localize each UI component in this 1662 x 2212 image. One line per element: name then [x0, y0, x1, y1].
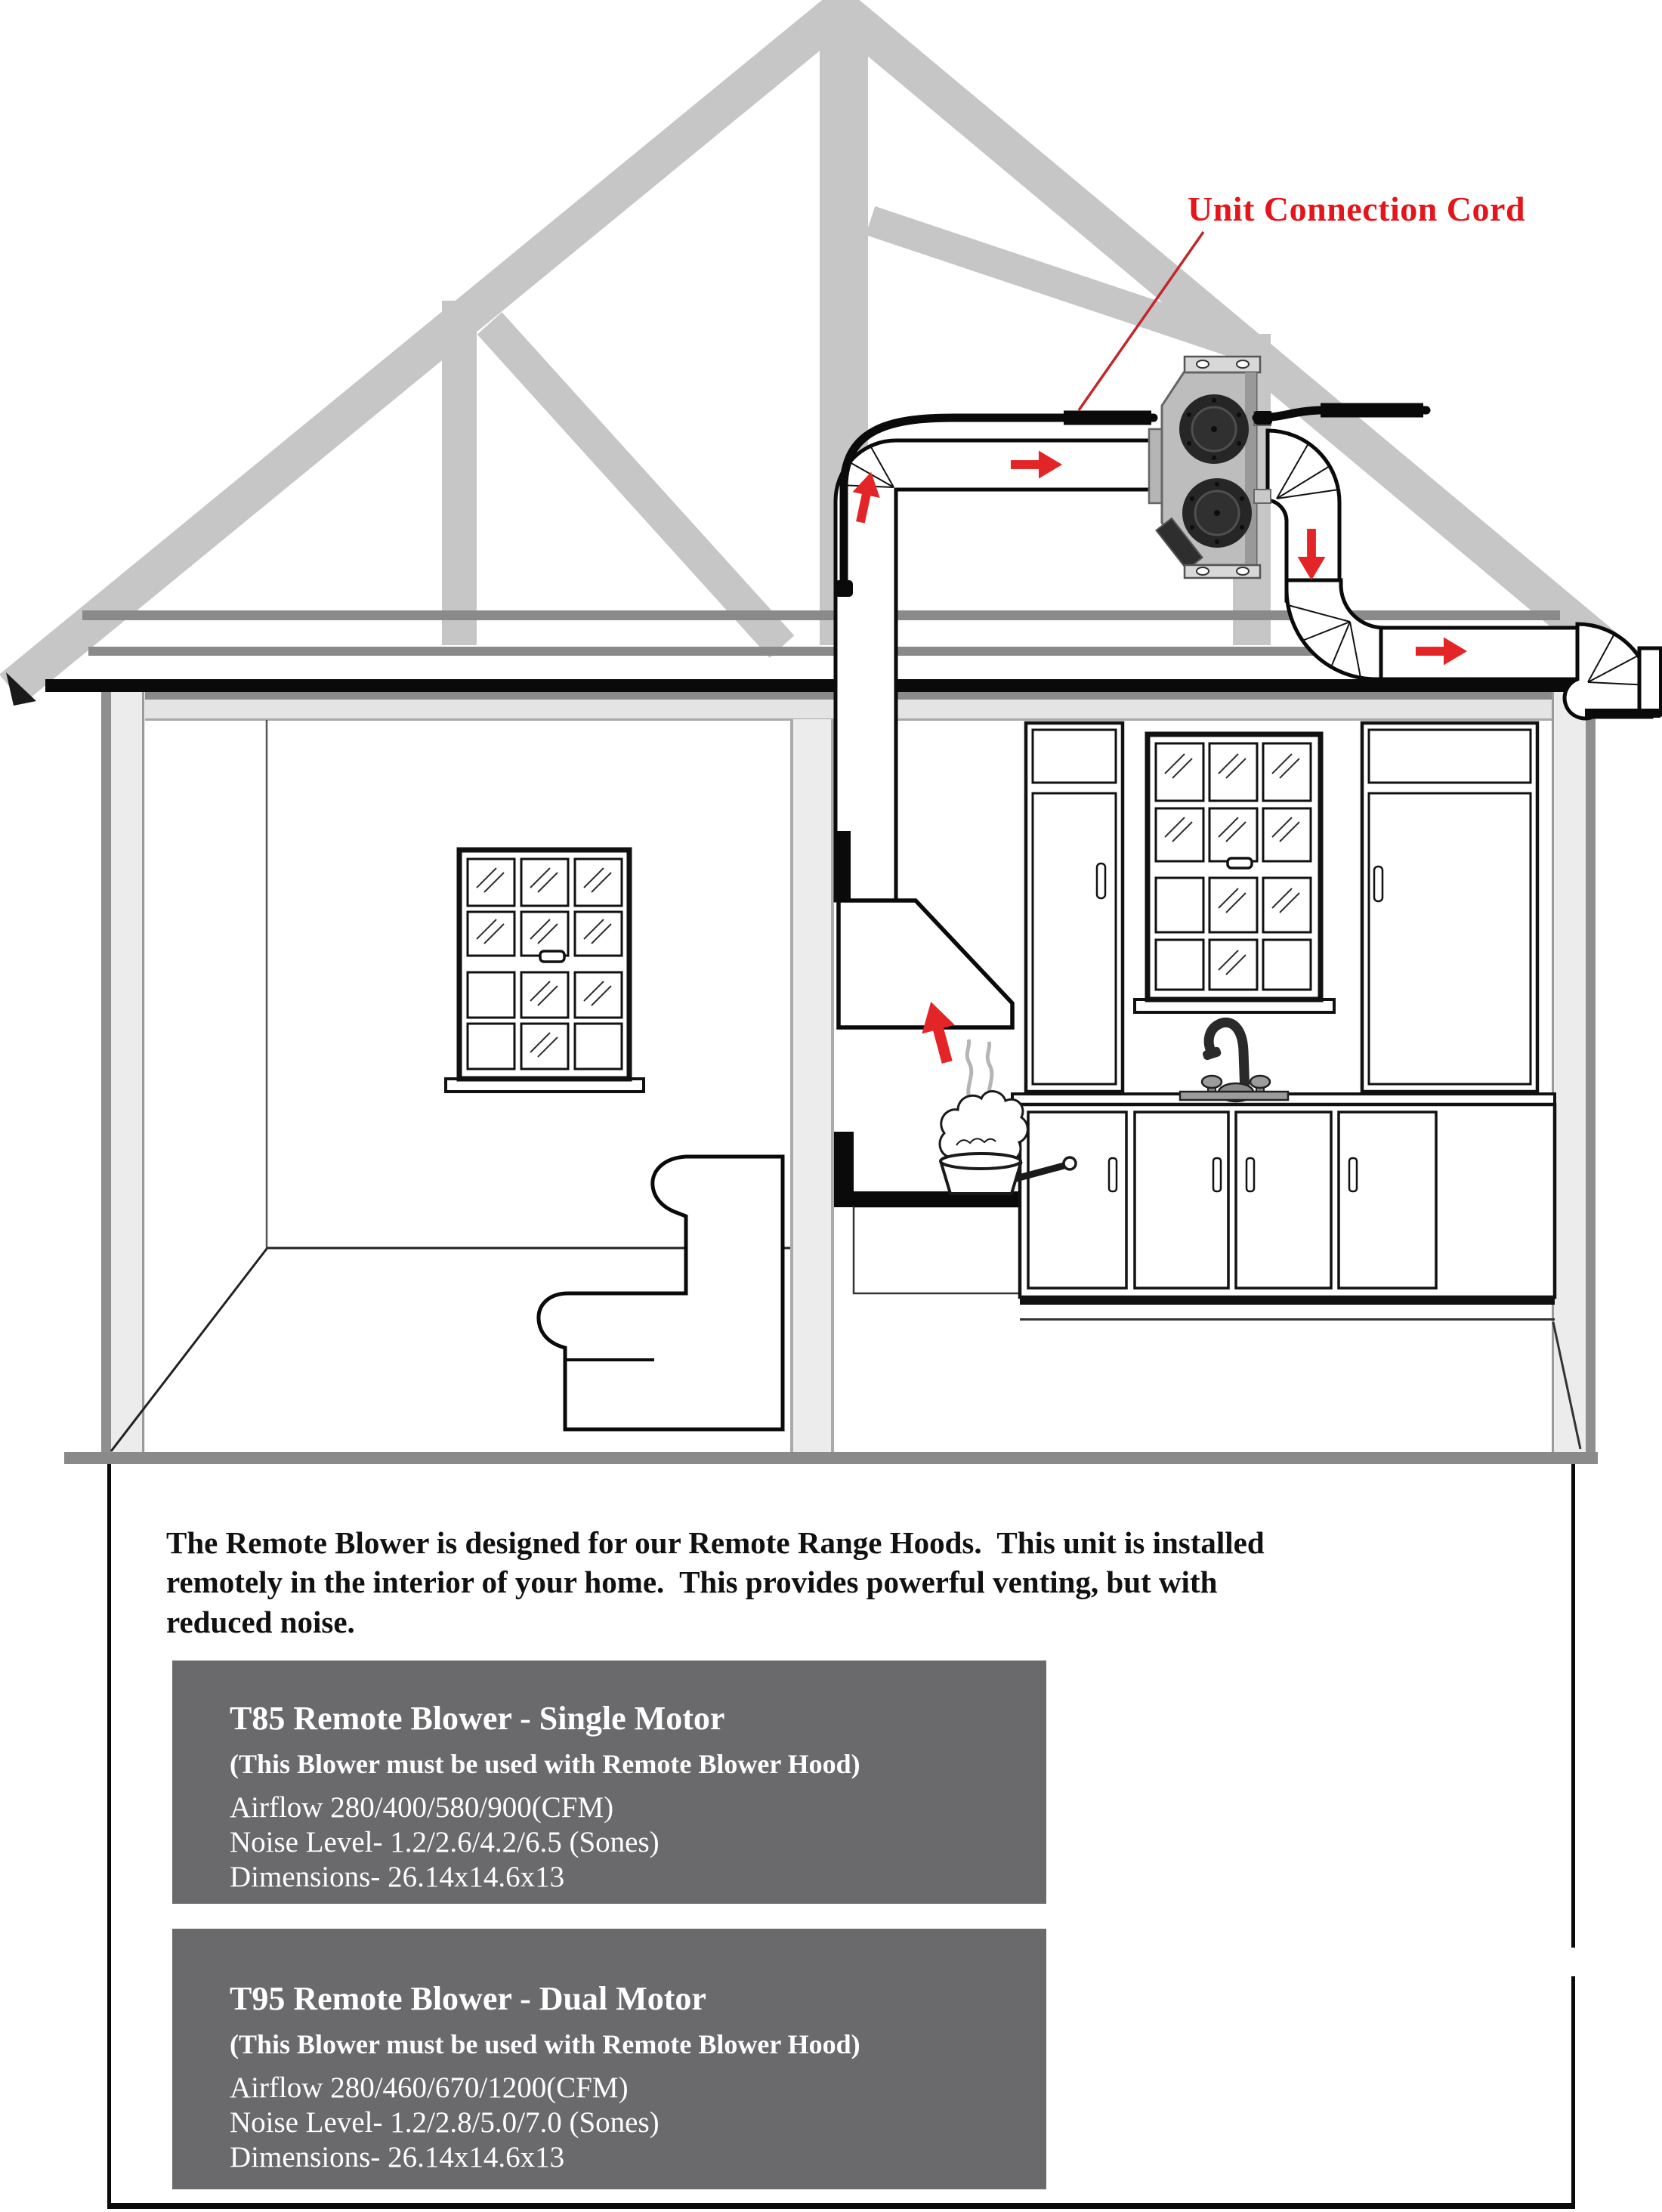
- steam-wisp: [967, 1040, 971, 1101]
- interior-wall-right-edge: [831, 719, 834, 1452]
- blower-scroll-bottom: [1182, 478, 1252, 548]
- product-noise-level: Noise Level- 1.2/2.6/4.2/6.5 (Sones): [230, 1825, 1024, 1860]
- cabinet-handle: [1213, 1158, 1221, 1191]
- ceiling-black-band: [45, 679, 1596, 692]
- vent-cap-base: [1585, 709, 1660, 718]
- pot-rim: [941, 1154, 1021, 1169]
- product-airflow: Airflow 280/460/670/1200(CFM): [230, 2071, 1024, 2105]
- product-noise-level: Noise Level- 1.2/2.8/5.0/7.0 (Sones): [230, 2105, 1024, 2140]
- vent-cap-edge: [1659, 647, 1662, 716]
- product-title: T95 Remote Blower - Dual Motor: [230, 1982, 1024, 2016]
- blower-side-plate: [1245, 372, 1256, 565]
- blower-outlet-elbow: [1268, 431, 1339, 601]
- product-note: (This Blower must be used with Remote Bl…: [230, 1750, 1024, 1780]
- sash-latch: [540, 951, 564, 962]
- ground-band: [64, 1452, 1598, 1464]
- cabinet-handle: [1246, 1158, 1254, 1191]
- description-paragraph: The Remote Blower is designed for our Re…: [166, 1523, 1466, 1642]
- sink-counter: [1012, 1094, 1555, 1321]
- pot-handle-knob: [1064, 1157, 1076, 1169]
- blower-tab: [1254, 490, 1271, 503]
- roof-truss: [6, 0, 1654, 706]
- left-web-diagonal: [490, 323, 782, 647]
- cabinet-handle: [1109, 1158, 1117, 1191]
- toe-kick: [1020, 1297, 1555, 1305]
- product-spec-box-t85: T85 Remote Blower - Single Motor (This B…: [172, 1661, 1046, 1904]
- remote-blower-unit: [1149, 357, 1271, 578]
- cabinet-door: [1339, 1112, 1436, 1288]
- page-border-left: [107, 1464, 111, 2208]
- upper-cabinet-left: [1026, 723, 1123, 1092]
- range-hood: [839, 901, 1012, 1027]
- product-note: (This Blower must be used with Remote Bl…: [230, 2030, 1024, 2060]
- hood-chimney-shadow: [836, 831, 851, 901]
- inlet-flange: [1149, 429, 1163, 503]
- upper-cabinet-right: [1362, 723, 1537, 1092]
- product-title: T85 Remote Blower - Single Motor: [230, 1701, 1024, 1736]
- sash-latch: [1228, 858, 1252, 868]
- eave-duct: [1381, 628, 1577, 679]
- faucet-handle: [1250, 1076, 1270, 1088]
- product-airflow: Airflow 280/400/580/900(CFM): [230, 1790, 1024, 1825]
- cabinet-door: [1135, 1112, 1228, 1288]
- cabinet-handle: [1097, 863, 1105, 898]
- left-web-vertical: [442, 301, 477, 645]
- living-room-window: [446, 850, 644, 1092]
- left-wall-outer-edge: [101, 692, 111, 1457]
- faucet-base-plate: [1180, 1092, 1288, 1100]
- product-dimensions: Dimensions- 26.14x14.6x13: [230, 2140, 1024, 2175]
- blower-scroll-top: [1179, 394, 1249, 464]
- remote-blower-diagram-page: Unit Connection Cord The Remote Blower i…: [0, 0, 1662, 2212]
- interior-wall: [790, 719, 834, 1452]
- page-border-right-lower: [1571, 1976, 1575, 2208]
- kitchen-window: [1135, 734, 1334, 1012]
- cabinet-door: [1028, 1112, 1126, 1288]
- page-border-right-upper: [1571, 1464, 1575, 1948]
- faucet-handle: [1202, 1076, 1222, 1088]
- vent-cap: [1639, 648, 1662, 715]
- product-dimensions: Dimensions- 26.14x14.6x13: [230, 1860, 1024, 1895]
- unit-connection-cord-label: Unit Connection Cord: [1188, 189, 1525, 229]
- boiling-steam-cloud: [940, 1092, 1027, 1160]
- counter-side-edge: [834, 1132, 854, 1207]
- right-wall-inner-edge: [1552, 692, 1554, 1457]
- product-spec-box-t95: T95 Remote Blower - Dual Motor (This Blo…: [172, 1929, 1046, 2189]
- interior-wall-left-edge: [790, 719, 793, 1452]
- cabinet-door: [1236, 1112, 1331, 1288]
- base-line: [1020, 1318, 1555, 1321]
- sofa: [539, 1157, 783, 1429]
- cabinet-handle: [1374, 867, 1382, 901]
- cabinet-handle: [1349, 1158, 1357, 1191]
- left-wall-inner-edge: [142, 692, 144, 1457]
- cord-plug: [835, 580, 853, 597]
- right-wall-outer-edge: [1586, 692, 1596, 1457]
- page-border-bottom: [107, 2203, 1575, 2209]
- cord-connector: [1254, 411, 1272, 425]
- eave-elbow: [1287, 580, 1384, 679]
- faucet: [1180, 1022, 1288, 1101]
